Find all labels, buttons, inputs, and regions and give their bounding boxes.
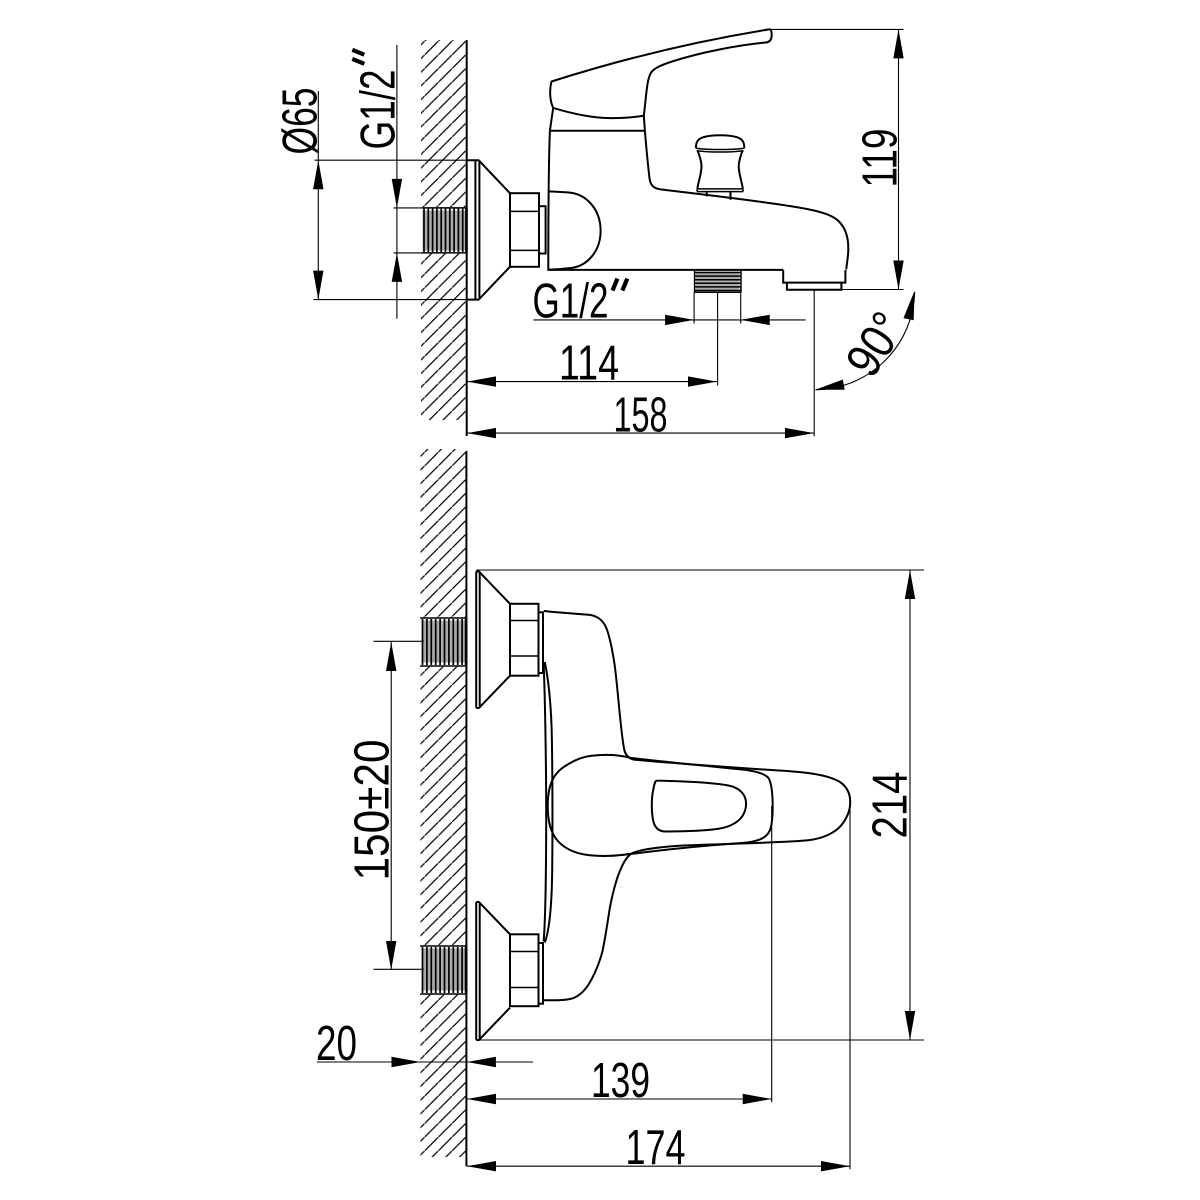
svg-text:174: 174 [626, 1121, 686, 1175]
svg-text:G1/2: G1/2 [352, 70, 406, 150]
svg-text:Ø65: Ø65 [274, 88, 328, 155]
svg-text:114: 114 [559, 337, 619, 391]
svg-text:214: 214 [864, 772, 918, 839]
svg-text:20: 20 [316, 1017, 357, 1071]
svg-text:139: 139 [591, 1054, 650, 1108]
svg-text:G1/2: G1/2 [533, 275, 609, 329]
svg-text:150±20: 150±20 [346, 740, 400, 881]
svg-text:119: 119 [854, 129, 908, 188]
svg-text:158: 158 [614, 388, 668, 442]
